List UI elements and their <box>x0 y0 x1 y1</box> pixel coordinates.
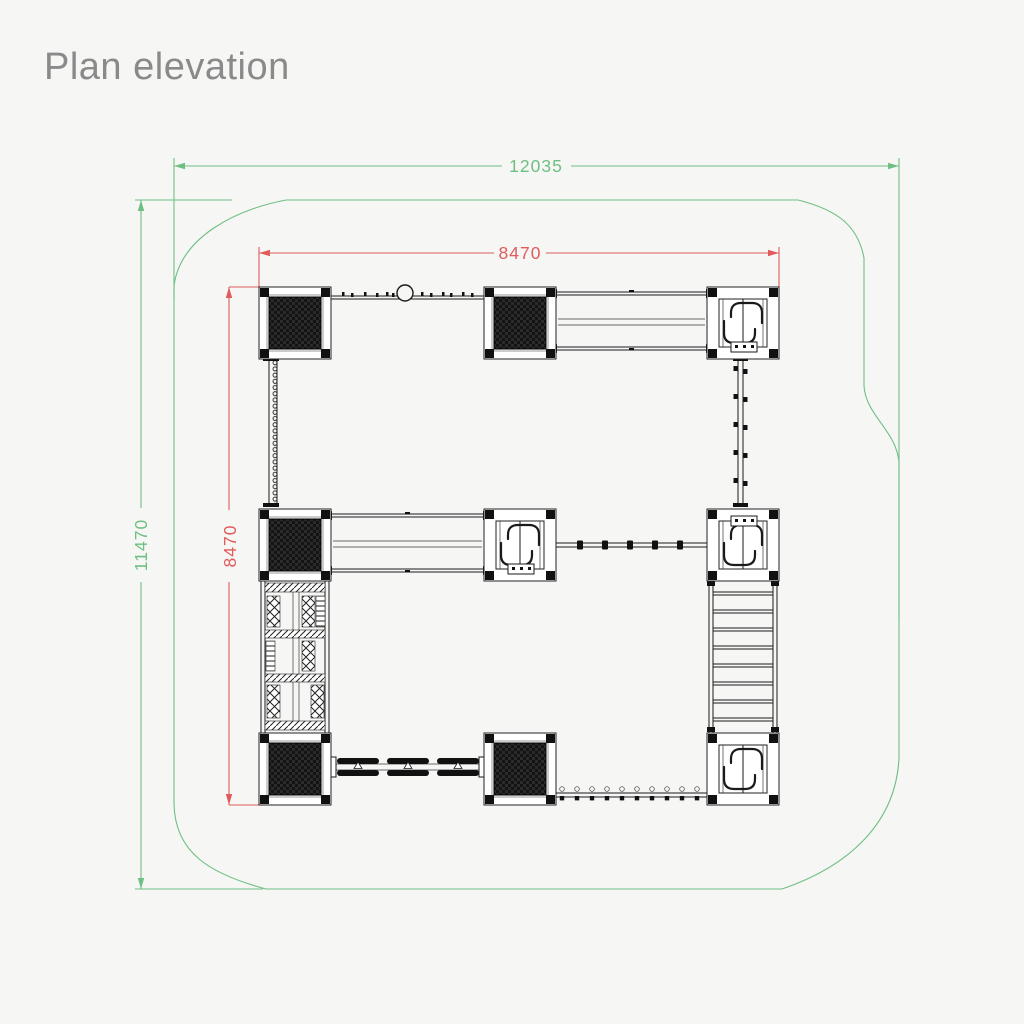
chain-climber <box>263 357 279 507</box>
dimension-structure-height-label: 8470 <box>220 525 240 568</box>
plan-drawing-page: Plan elevation <box>0 0 1024 1024</box>
tower-middle-left <box>259 509 331 581</box>
dimension-structure-width: 8470 <box>259 243 779 287</box>
dimension-overall-height: 11470 <box>131 200 263 889</box>
monkey-bars <box>556 541 707 550</box>
tower-top-left <box>259 287 331 359</box>
rope-climber <box>733 357 748 507</box>
walkway-bridge-middle <box>322 511 493 575</box>
tower-bottom-left <box>259 733 331 805</box>
climbing-maze <box>261 581 329 733</box>
stepping-pods <box>331 757 484 777</box>
rung-bridge <box>707 581 779 733</box>
dimension-structure-height: 8470 <box>220 287 259 805</box>
walkway-bridge-top <box>547 289 716 353</box>
dimension-overall-height-label: 11470 <box>131 519 151 571</box>
overhead-bar <box>331 285 484 301</box>
dimension-overall-width-label: 12035 <box>509 156 563 176</box>
dimension-structure-width-label: 8470 <box>499 243 542 263</box>
tower-bottom-right <box>707 733 779 805</box>
tower-bottom-middle <box>484 733 556 805</box>
fireman-pole-ring <box>397 285 413 301</box>
balance-rail <box>556 787 707 801</box>
drawing-canvas: 12035 11470 8470 8470 <box>0 0 1024 1024</box>
tower-top-middle <box>484 287 556 359</box>
